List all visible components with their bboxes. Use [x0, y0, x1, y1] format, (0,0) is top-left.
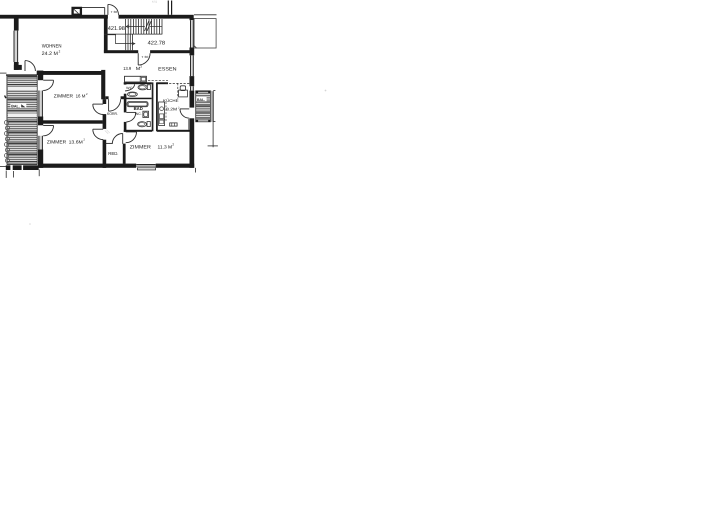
- svg-text:BAL.: BAL.: [11, 103, 20, 108]
- svg-text:4.51: 4.51: [152, 1, 158, 4]
- svg-text:T 30: T 30: [111, 10, 118, 14]
- svg-text:16 M: 16 M: [76, 93, 86, 98]
- svg-text:13.9: 13.9: [123, 66, 131, 71]
- svg-text:13.6M: 13.6M: [69, 140, 84, 145]
- svg-text:WOHNEN: WOHNEN: [42, 43, 62, 49]
- svg-text:KÜCHE: KÜCHE: [163, 98, 179, 103]
- svg-text:ZIMMER: ZIMMER: [47, 140, 67, 146]
- svg-text:11.3 M: 11.3 M: [158, 144, 173, 149]
- svg-text:ZIMMER: ZIMMER: [130, 144, 151, 150]
- svg-text:8.2M: 8.2M: [166, 107, 177, 112]
- svg-text:ESSEN: ESSEN: [158, 67, 177, 73]
- svg-text:KORR.: KORR.: [107, 112, 118, 116]
- svg-text:WC.: WC.: [135, 112, 142, 116]
- svg-text:RED.: RED.: [108, 151, 118, 156]
- svg-text:421.98: 421.98: [108, 26, 125, 32]
- svg-text:WC: WC: [126, 86, 133, 90]
- svg-text:24.2 M: 24.2 M: [42, 51, 58, 57]
- svg-text:T 30: T 30: [141, 55, 148, 59]
- svg-text:422.78: 422.78: [148, 40, 166, 46]
- svg-text:BAD: BAD: [134, 106, 143, 111]
- svg-text:BAL.: BAL.: [197, 98, 205, 102]
- svg-text:ZIMMER: ZIMMER: [54, 93, 74, 99]
